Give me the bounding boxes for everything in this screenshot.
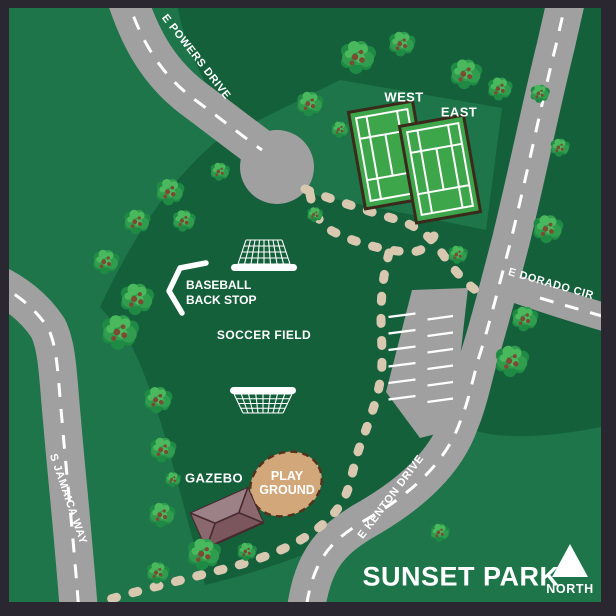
tree-blob: [513, 354, 517, 358]
tree-blob: [341, 130, 344, 133]
tree-blob: [159, 400, 163, 404]
tree-blob: [171, 186, 175, 190]
tree-blob: [240, 548, 244, 552]
tree-blob: [244, 550, 248, 554]
tree-blob: [315, 211, 317, 213]
tree-blob: [217, 170, 221, 174]
tree-blob: [185, 216, 188, 219]
tree-blob: [491, 84, 497, 90]
tree-blob: [397, 41, 402, 46]
goal-bar: [230, 387, 296, 394]
tree-blob: [129, 302, 134, 307]
tree-blob: [359, 57, 365, 63]
tree-blob: [454, 68, 461, 75]
tree-blob: [513, 361, 518, 366]
tree-blob: [340, 126, 342, 128]
frame-bottom: [0, 602, 616, 616]
tree-blob: [541, 232, 545, 236]
tree-blob: [163, 509, 166, 512]
tree-blob: [496, 86, 500, 90]
tree-blob: [311, 104, 315, 108]
tree-blob: [535, 96, 538, 99]
tree-blob: [337, 128, 340, 131]
tree-blob: [185, 221, 189, 225]
tree-blob: [501, 89, 505, 93]
frame-top: [0, 0, 616, 8]
tree-blob: [345, 50, 353, 58]
tree-blob: [312, 213, 315, 216]
tree-blob: [533, 90, 537, 94]
tree-blob: [300, 99, 306, 105]
tree-blob: [198, 551, 204, 557]
tree-blob: [440, 529, 442, 531]
tree-blob: [159, 573, 163, 577]
tree-blob: [403, 44, 407, 48]
tree-blob: [541, 94, 544, 97]
tree-blob: [221, 172, 224, 175]
tree-blob: [131, 296, 137, 302]
tree-blob: [153, 575, 156, 578]
tree-blob: [164, 444, 167, 447]
tree-blob: [132, 219, 137, 224]
tree-blob: [519, 321, 523, 325]
tree-blob: [334, 126, 338, 130]
tree-blob: [173, 476, 175, 478]
tree-blob: [107, 256, 110, 259]
tree-blob: [167, 476, 171, 480]
tree-blob: [311, 216, 313, 218]
tree-blob: [150, 568, 155, 573]
tree-blob: [336, 131, 338, 133]
tree-blob: [157, 452, 161, 456]
park-map: E POWERS DRIVE E DORADO CIR E KENTON DRI…: [0, 0, 616, 616]
tree-blob: [111, 336, 116, 341]
tree-blob: [458, 77, 462, 81]
tree-blob: [138, 299, 143, 304]
tree-blob: [459, 255, 462, 258]
tree-blob: [131, 224, 135, 228]
tree-blob: [501, 84, 504, 87]
tree-blob: [156, 517, 160, 521]
tree-blob: [125, 292, 133, 300]
tree-blob: [441, 533, 444, 536]
tree-blob: [158, 447, 163, 452]
tree-blob: [460, 71, 466, 77]
tree-blob: [506, 358, 512, 364]
tree-blob: [157, 512, 162, 517]
tree-blob: [458, 251, 460, 253]
tree-blob: [311, 98, 314, 101]
tree-blob: [309, 211, 313, 215]
tree-blob: [433, 529, 437, 533]
tree-blob: [494, 91, 497, 94]
tree-blob: [553, 144, 557, 148]
tree-blob: [196, 557, 201, 562]
tree-blob: [220, 168, 222, 170]
tree-blob: [352, 54, 358, 60]
tree-blob: [205, 554, 210, 559]
tree-blob: [154, 571, 158, 575]
tree-blob: [557, 146, 561, 150]
tree-blob: [121, 332, 127, 338]
tree-blob: [500, 354, 508, 362]
tree-blob: [165, 189, 170, 194]
tree-blob: [455, 253, 459, 257]
tree-blob: [316, 215, 319, 218]
tree-blob: [305, 101, 310, 106]
tree-blob: [537, 223, 544, 230]
tree-blob: [106, 325, 114, 333]
map-canvas: [0, 0, 616, 616]
tree-blob: [151, 403, 155, 407]
tree-blob: [247, 548, 249, 550]
tree-blob: [540, 90, 542, 92]
tree-blob: [127, 217, 133, 223]
tree-blob: [359, 50, 363, 54]
tree-blob: [215, 174, 218, 177]
tree-blob: [180, 219, 184, 223]
tree-blob: [543, 226, 548, 231]
tree-blob: [159, 568, 162, 571]
tree-blob: [526, 319, 530, 323]
tree-blob: [392, 39, 398, 45]
tree-blob: [515, 314, 521, 320]
tree-blob: [504, 364, 509, 369]
tree-blob: [100, 264, 104, 268]
tree-blob: [96, 257, 102, 263]
tree-blob: [171, 192, 175, 196]
tree-blob: [213, 168, 217, 172]
tree-blob: [205, 547, 209, 551]
tree-blob: [174, 480, 177, 483]
tree-blob: [453, 257, 456, 260]
tree-blob: [451, 251, 455, 255]
tree-blob: [170, 478, 173, 481]
tree-blob: [560, 144, 562, 146]
frame-left: [0, 0, 9, 616]
tree-blob: [526, 313, 529, 316]
tree-blob: [113, 329, 120, 336]
tree-blob: [242, 554, 245, 557]
tree-blob: [350, 61, 355, 66]
tree-blob: [248, 552, 251, 555]
tree-blob: [148, 394, 154, 400]
tree-blob: [163, 515, 167, 519]
tree-blob: [101, 259, 106, 264]
goal-bar: [231, 264, 297, 271]
tree-blob: [152, 510, 158, 516]
tree-blob: [121, 324, 126, 329]
tree-blob: [437, 531, 441, 535]
tree-blob: [163, 195, 167, 199]
tree-blob: [549, 223, 553, 227]
tree-blob: [179, 223, 182, 226]
tree-blob: [549, 229, 554, 234]
tree-blob: [138, 292, 142, 296]
tree-blob: [467, 74, 472, 79]
frame-right: [601, 0, 616, 616]
tree-blob: [520, 316, 525, 321]
tree-blob: [304, 106, 308, 110]
tree-blob: [138, 216, 141, 219]
tree-blob: [176, 216, 181, 221]
tree-blob: [160, 186, 166, 192]
tree-blob: [467, 67, 471, 71]
tree-blob: [169, 481, 171, 483]
tree-blob: [164, 450, 168, 454]
tree-blob: [561, 148, 564, 151]
tree-blob: [153, 397, 158, 402]
tree-blob: [403, 38, 406, 41]
tree-blob: [537, 92, 541, 96]
tree-blob: [192, 547, 200, 555]
tree-blob: [138, 222, 142, 226]
tree-blob: [107, 262, 111, 266]
tree-blob: [555, 150, 558, 153]
tree-blob: [159, 394, 163, 398]
tree-blob: [435, 535, 438, 538]
tree-blob: [396, 46, 400, 50]
tree-blob: [153, 445, 159, 451]
